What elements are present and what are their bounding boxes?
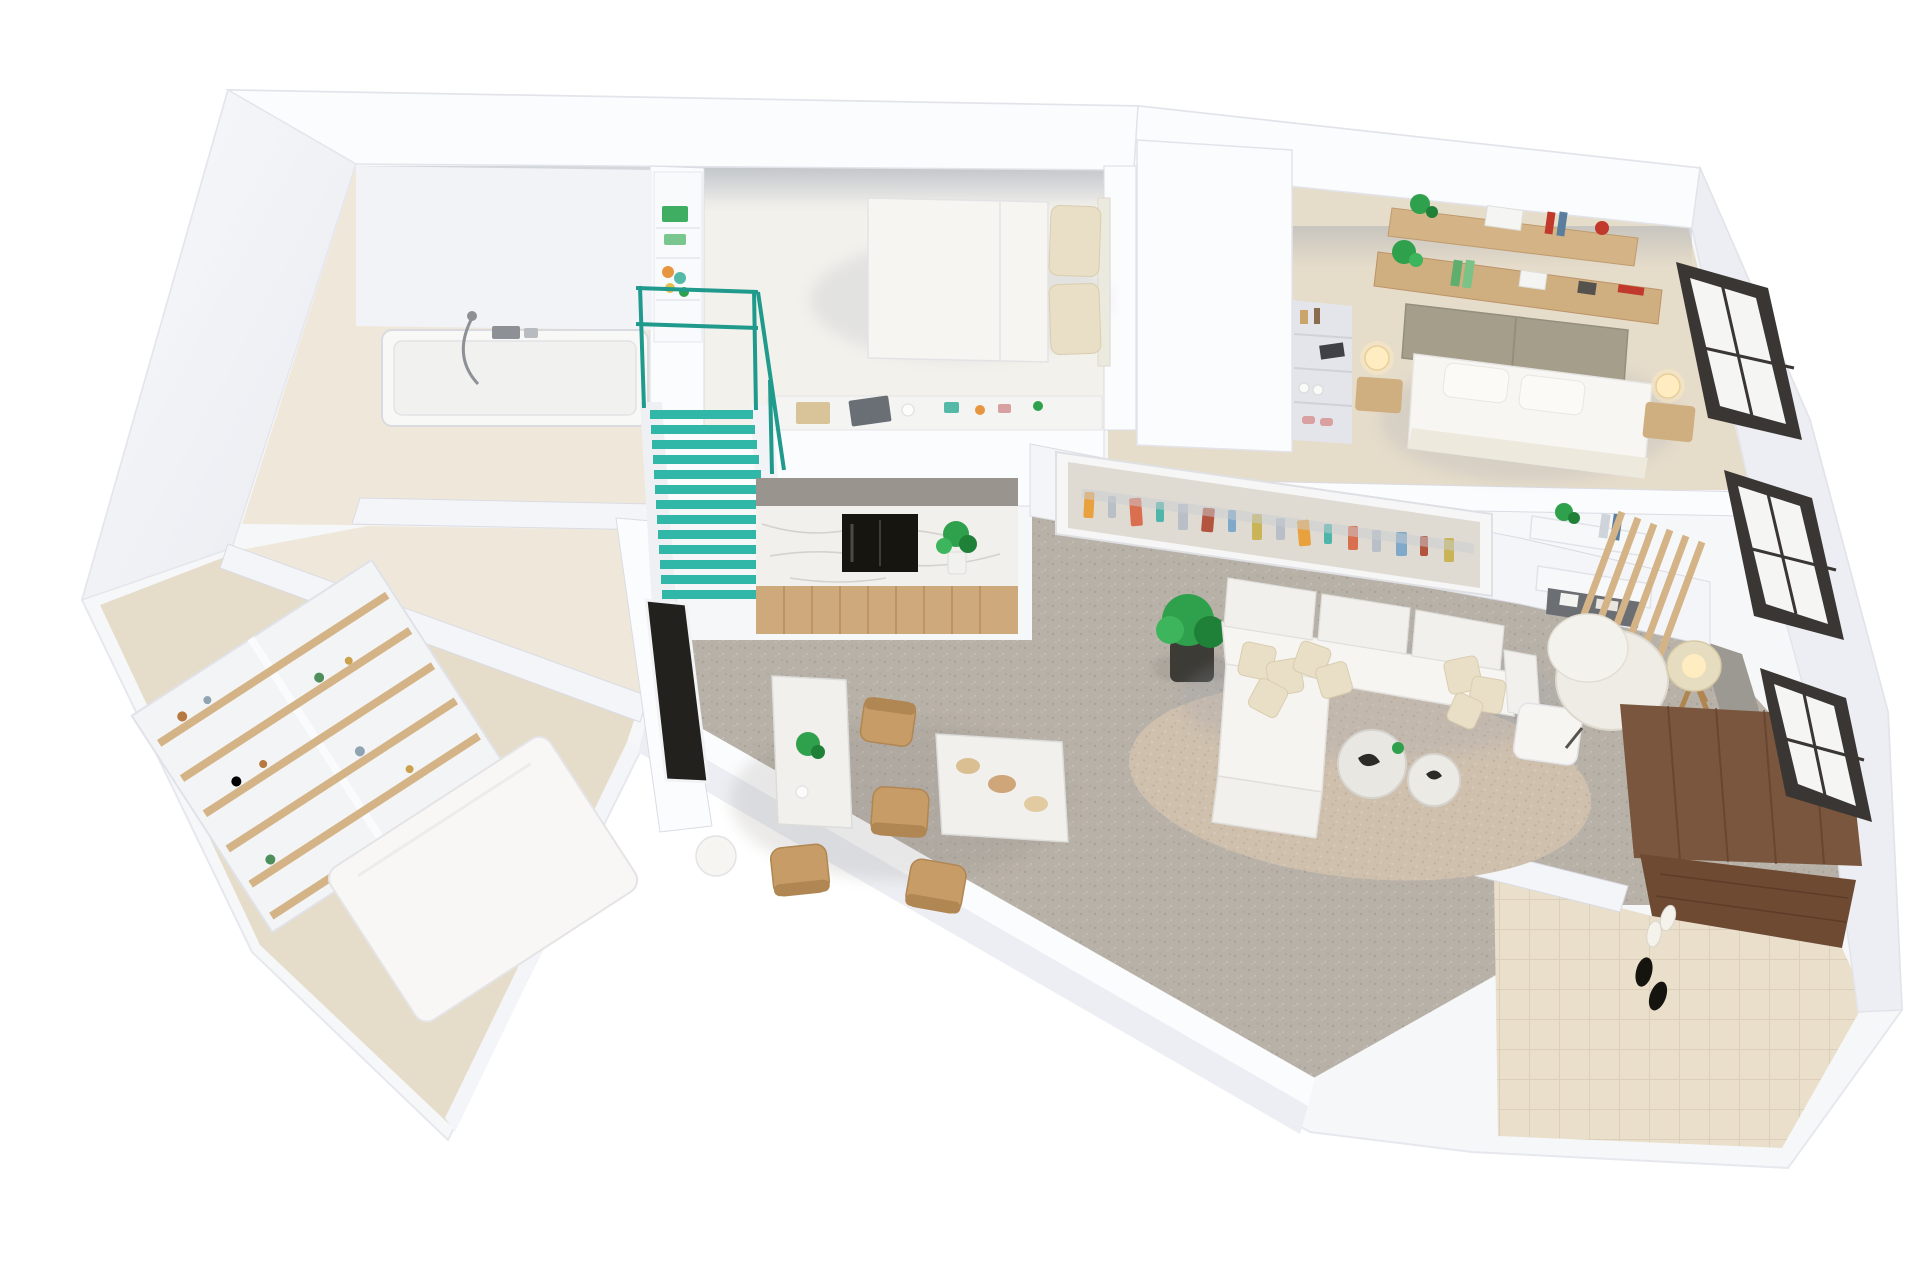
dark-decor <box>1577 281 1596 295</box>
perfume-bottle <box>1314 308 1320 324</box>
red-bowl <box>1595 221 1609 235</box>
ledge-box <box>796 402 830 424</box>
ledge-pink <box>998 404 1011 413</box>
serving-bowl <box>1024 796 1048 812</box>
wood-cabinets <box>756 586 1018 634</box>
green-box-small <box>664 234 686 245</box>
shoes <box>1320 418 1333 426</box>
cup <box>1313 385 1323 395</box>
cup <box>1299 383 1309 393</box>
master-bed <box>1402 304 1652 478</box>
toy-shelf-column <box>654 172 702 342</box>
shoes <box>1302 416 1315 424</box>
floorplan-render <box>0 0 1920 1280</box>
bedside-lamp <box>1365 346 1389 370</box>
marble-side-table <box>936 734 1068 842</box>
ledge-plant <box>1033 401 1043 411</box>
white-stool <box>696 836 736 876</box>
ledge-cup <box>902 404 914 416</box>
white-pillow <box>1442 362 1510 404</box>
green-box-decor <box>662 206 688 222</box>
display-ledge <box>768 395 1102 430</box>
perfume-bottle <box>1300 310 1308 324</box>
white-pillow <box>1518 374 1586 416</box>
floorplan-svg <box>0 0 1920 1280</box>
ledge-book <box>848 395 891 426</box>
shadow-loft-wall <box>704 168 1104 202</box>
ledge-teal <box>944 402 959 413</box>
room-kitchen <box>756 478 1018 634</box>
serving-bowl <box>956 758 980 774</box>
counter-band <box>756 478 1018 508</box>
bathroom-upper-wall-face <box>356 166 652 330</box>
bathtub <box>382 330 648 426</box>
wall-bathroom-south <box>352 498 652 530</box>
serving-bowl <box>988 775 1016 793</box>
built-in-oven <box>842 514 918 572</box>
closet-block <box>1137 140 1292 452</box>
ledge-orange <box>975 405 985 415</box>
table-plant-small <box>1392 742 1404 754</box>
wall-top-north <box>228 90 1138 170</box>
white-box <box>1519 270 1547 289</box>
laptop <box>1485 206 1523 231</box>
bedside-lamp <box>1656 374 1680 398</box>
marble-dining-table <box>772 676 852 828</box>
